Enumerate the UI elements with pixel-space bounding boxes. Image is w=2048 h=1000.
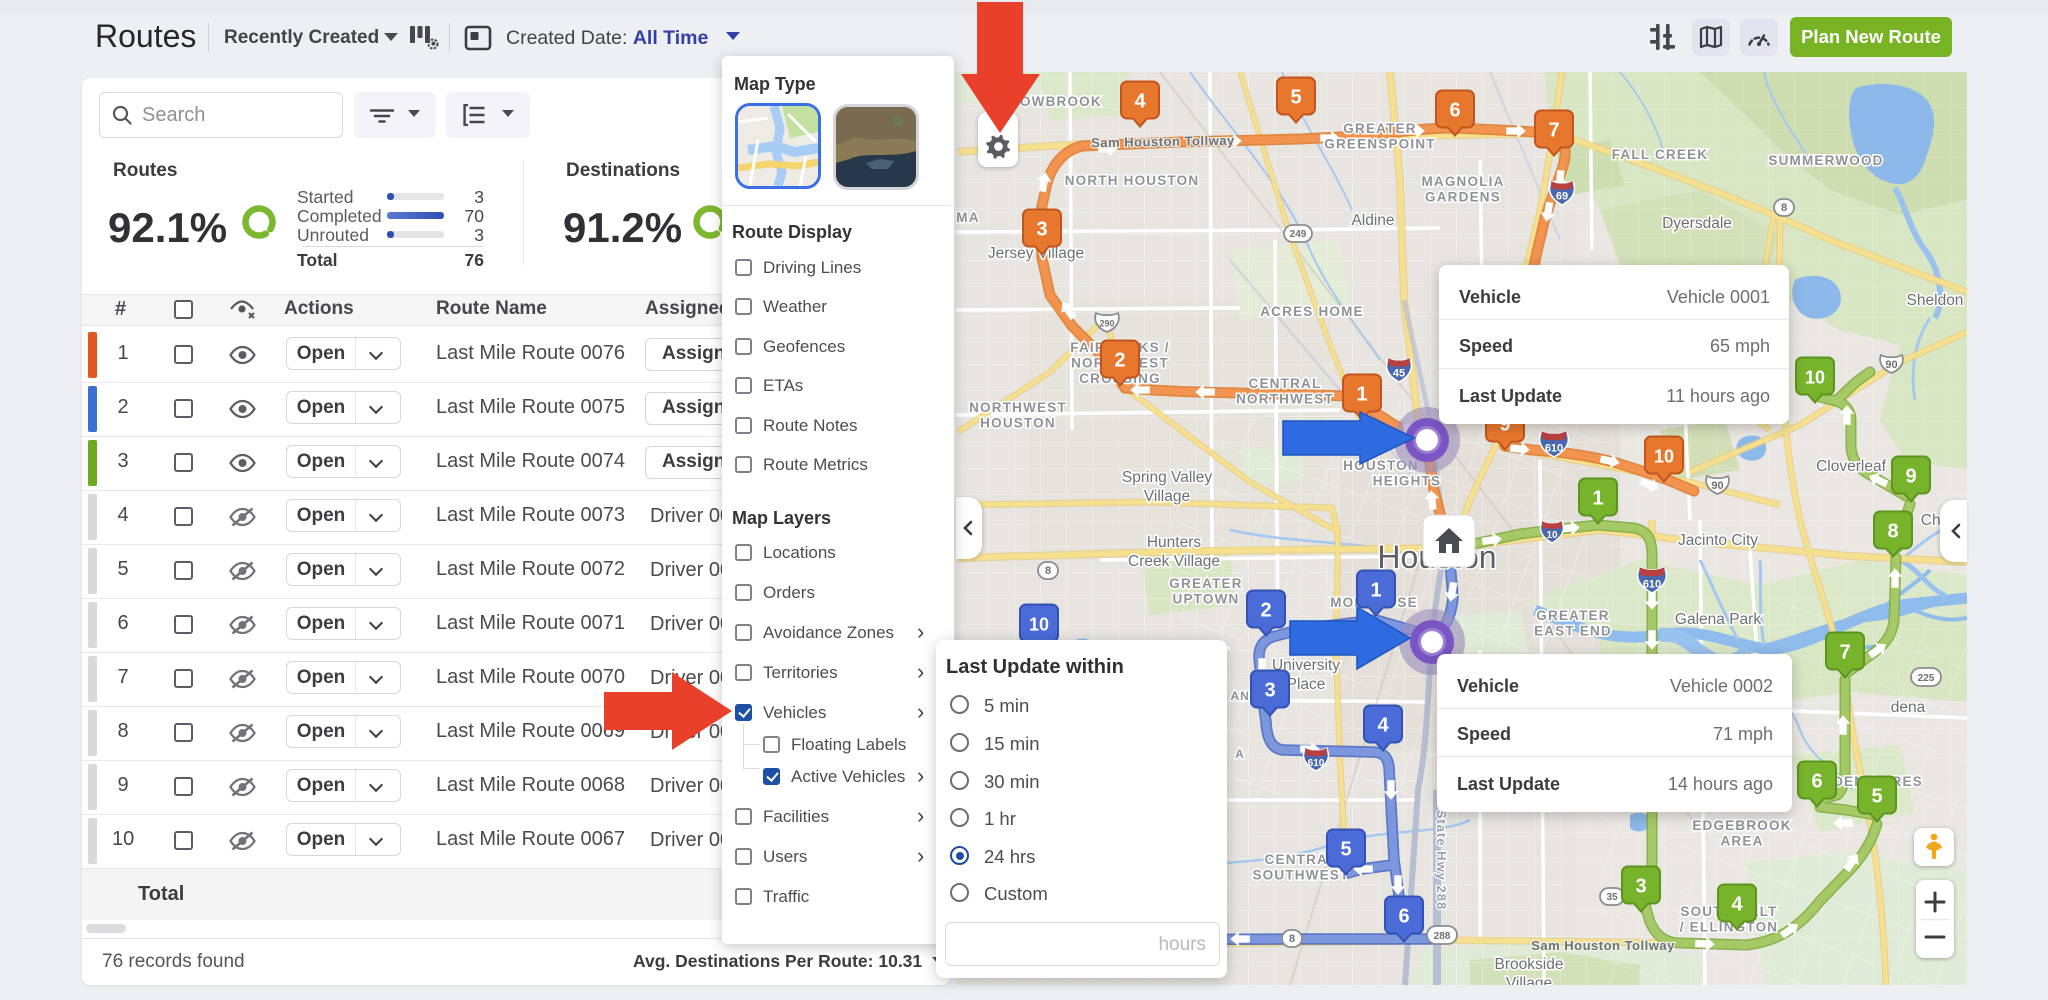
svg-text:90: 90	[1711, 480, 1723, 492]
svg-text:CENTRALNORTHWEST: CENTRALNORTHWEST	[1236, 376, 1334, 407]
svg-text:1: 1	[1370, 580, 1381, 602]
svg-text:A: A	[1235, 747, 1245, 761]
svg-text:10: 10	[1805, 368, 1825, 388]
svg-text:Cloverleaf: Cloverleaf	[1816, 458, 1886, 475]
svg-text:MA: MA	[956, 210, 979, 225]
svg-text:10: 10	[1546, 530, 1558, 541]
svg-text:8: 8	[1781, 202, 1787, 214]
svg-text:5: 5	[1290, 87, 1301, 109]
svg-text:Sam Houston Tollway: Sam Houston Tollway	[1531, 938, 1675, 953]
svg-text:10: 10	[1654, 447, 1674, 467]
svg-text:9: 9	[1905, 466, 1916, 488]
svg-text:GREATERUPTOWN: GREATERUPTOWN	[1169, 576, 1242, 607]
svg-text:290: 290	[1099, 319, 1114, 329]
svg-text:dena: dena	[1891, 699, 1926, 716]
svg-text:249: 249	[1290, 229, 1307, 240]
svg-text:69: 69	[1556, 191, 1568, 203]
svg-text:6: 6	[1398, 906, 1409, 928]
svg-text:Sam Houston Tollway: Sam Houston Tollway	[1091, 133, 1235, 151]
svg-text:MAGNOLIAGARDENS: MAGNOLIAGARDENS	[1421, 174, 1504, 205]
svg-text:7: 7	[1839, 642, 1850, 664]
svg-text:45: 45	[1393, 368, 1405, 380]
svg-text:8: 8	[1045, 565, 1051, 577]
svg-text:NORTHWESTHOUSTON: NORTHWESTHOUSTON	[969, 400, 1067, 431]
svg-text:State Hwy 288: State Hwy 288	[1434, 810, 1449, 910]
svg-text:FALL CREEK: FALL CREEK	[1612, 147, 1709, 162]
svg-text:SUMMERWOOD: SUMMERWOOD	[1768, 153, 1883, 168]
svg-text:4: 4	[1731, 894, 1743, 916]
svg-text:Dyersdale: Dyersdale	[1662, 215, 1732, 232]
svg-text:10: 10	[1029, 615, 1049, 635]
svg-text:8: 8	[1887, 521, 1898, 543]
svg-text:2: 2	[1114, 350, 1125, 372]
svg-text:225: 225	[1918, 673, 1935, 684]
svg-text:1: 1	[1592, 488, 1603, 510]
svg-text:288: 288	[1434, 931, 1451, 942]
svg-text:Sheldon: Sheldon	[1907, 292, 1964, 309]
svg-text:1: 1	[1356, 384, 1367, 406]
svg-text:610: 610	[1545, 442, 1563, 454]
svg-text:2: 2	[1260, 600, 1271, 622]
svg-text:6: 6	[1449, 100, 1460, 122]
svg-text:3: 3	[1036, 219, 1047, 241]
svg-text:5: 5	[1340, 839, 1351, 861]
svg-text:4: 4	[1134, 91, 1146, 113]
svg-text:5: 5	[1871, 786, 1882, 808]
svg-text:4: 4	[1377, 715, 1389, 737]
svg-text:610: 610	[1308, 758, 1325, 769]
svg-text:Jacinto City: Jacinto City	[1678, 532, 1758, 549]
svg-text:610: 610	[1643, 578, 1661, 590]
svg-text:7: 7	[1548, 120, 1559, 142]
svg-text:3: 3	[1264, 680, 1275, 702]
svg-text:NORTH HOUSTON: NORTH HOUSTON	[1065, 173, 1200, 188]
svg-text:Galena Park: Galena Park	[1675, 611, 1761, 628]
svg-text:3: 3	[1635, 876, 1646, 898]
svg-text:8: 8	[1289, 933, 1295, 945]
svg-text:GREATEREAST END: GREATEREAST END	[1534, 608, 1612, 639]
svg-text:6: 6	[1811, 771, 1822, 793]
svg-text:35: 35	[1606, 892, 1618, 903]
svg-text:Aldine: Aldine	[1351, 212, 1394, 229]
svg-text:90: 90	[1885, 359, 1897, 371]
svg-text:ACRES HOME: ACRES HOME	[1260, 304, 1364, 319]
